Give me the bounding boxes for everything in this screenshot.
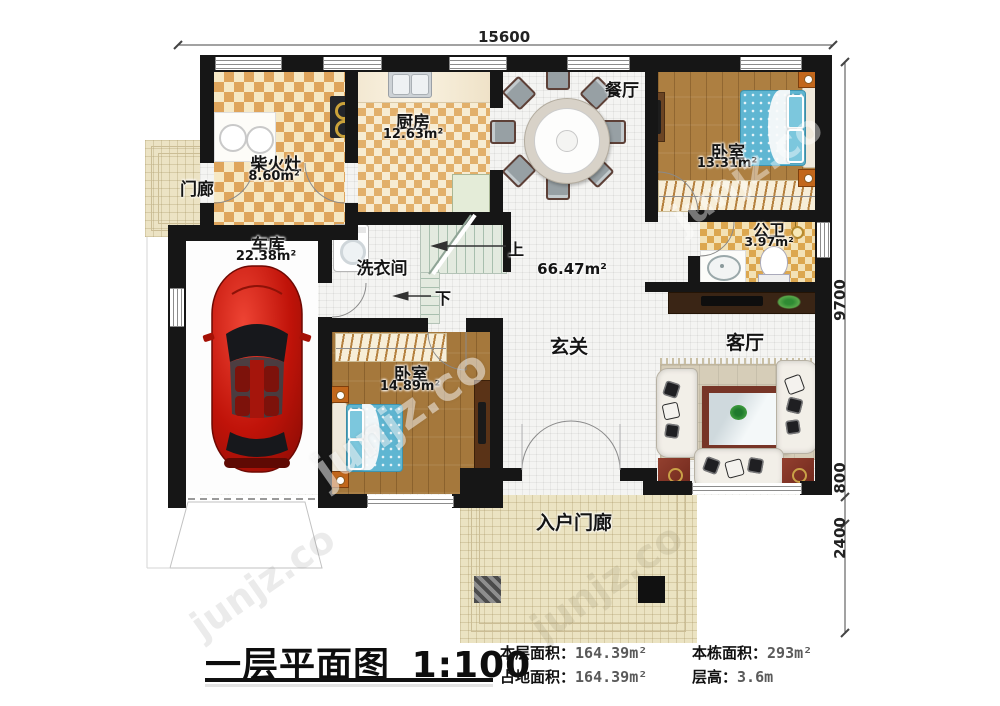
room-label-hall: 玄关 [550, 332, 588, 359]
stat-label: 层高： [692, 668, 737, 686]
room-area-firewood: 8.60m² [248, 169, 299, 184]
door-arcs [214, 163, 734, 470]
stat-floor-height: 层高：3.6m [692, 666, 773, 687]
stat-land-area: 占地面积：164.39m² [500, 666, 647, 687]
room-area-garage: 22.38m² [236, 249, 296, 264]
driveway [170, 502, 322, 568]
room-label-side-porch: 门廊 [180, 175, 214, 200]
stat-value: 293m² [767, 644, 812, 662]
dim-right-bottom: 2400 [831, 517, 849, 559]
dim-top: 15600 [478, 28, 530, 46]
stat-label: 本栋面积： [692, 644, 767, 662]
room-area-hall: 66.47m² [537, 260, 607, 278]
floor-plan: 15600 9700 800 2400 柴火灶 8.60m² 厨房 12.63m… [0, 0, 1000, 706]
plan-annotations [0, 0, 1000, 706]
stat-floor-area: 本层面积：164.39m² [500, 642, 647, 663]
room-label-living: 客厅 [726, 328, 764, 355]
dim-right-total: 9700 [831, 279, 849, 321]
dim-right-mid: 800 [831, 462, 849, 493]
room-label-laundry: 洗衣间 [357, 254, 408, 279]
stat-value: 3.6m [737, 668, 773, 686]
stat-label: 本层面积： [500, 644, 575, 662]
room-label-dining: 餐厅 [605, 76, 639, 101]
room-area-bathroom: 3.97m² [744, 234, 793, 249]
stairs-up-label: 上 [508, 236, 524, 260]
stat-building-area: 本栋面积：293m² [692, 642, 812, 663]
room-area-bedroom-top: 13.31m² [697, 156, 757, 171]
stat-value: 164.39m² [575, 644, 647, 662]
stat-label: 占地面积： [500, 668, 575, 686]
title-underline-shadow [205, 684, 493, 687]
room-label-entry-porch: 入户门廊 [536, 508, 612, 535]
stat-value: 164.39m² [575, 668, 647, 686]
stairs-down-label: 下 [435, 285, 451, 309]
room-area-bedroom-bottom: 14.89m² [380, 379, 440, 394]
title-underline [205, 678, 493, 682]
room-area-kitchen: 12.63m² [383, 127, 443, 142]
